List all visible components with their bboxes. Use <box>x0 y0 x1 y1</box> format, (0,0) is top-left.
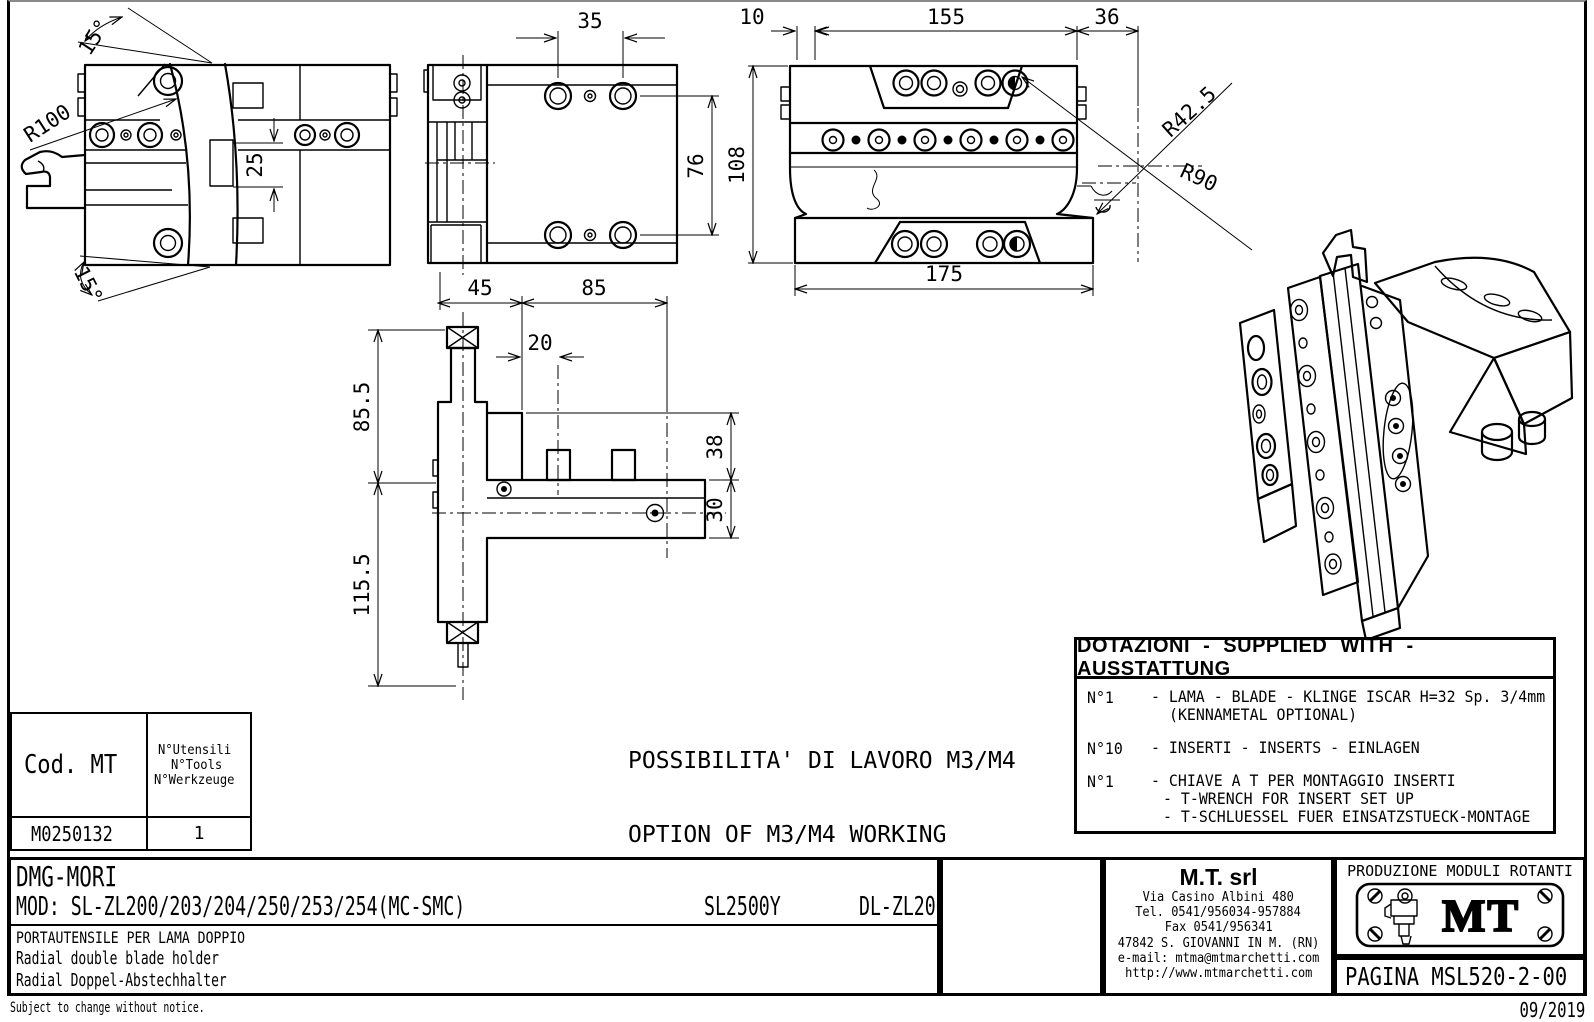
supplied-item: N°1 - LAMA - BLADE - KLINGE ISCAR H=32 S… <box>1087 688 1553 724</box>
description-it-text: PORTAUTENSILE PER LAMA DOPPIO <box>16 927 245 948</box>
working-note-line-en: OPTION OF M3/M4 WORKING <box>628 823 1016 848</box>
company-city-text: 47842 S. GIOVANNI IN M. (RN) <box>1118 936 1320 951</box>
company-address-text: Via Casino Albini 480 <box>1143 890 1294 905</box>
customer-name: DMG-MORI <box>16 862 937 892</box>
dim-label-35: 35 <box>577 9 602 33</box>
dim-label-25: 25 <box>243 152 267 177</box>
model-row: MOD: SL-ZL200/203/204/250/253/254(MC-SMC… <box>16 892 937 922</box>
logo-rotary-module-icon <box>1385 889 1417 944</box>
dim-label-20: 20 <box>527 331 552 355</box>
supplied-item-qty: N°1 <box>1087 688 1151 724</box>
tools-label-en: N°Tools <box>171 758 222 773</box>
supplied-with-box: DOTAZIONI - SUPPLIED WITH - AUSSTATTUNG … <box>1074 637 1556 834</box>
tools-count-cell: 1 <box>148 818 250 849</box>
description-en-text: Radial double blade holder <box>16 948 219 970</box>
dim-label-r42-5: R42.5 <box>1158 82 1221 142</box>
qty-text: N°1 <box>1087 772 1114 791</box>
title-block-description: PORTAUTENSILE PER LAMA DOPPIO Radial dou… <box>11 926 937 992</box>
tools-count: 1 <box>194 823 205 844</box>
dim-label-175: 175 <box>925 262 963 286</box>
company-city: 47842 S. GIOVANNI IN M. (RN) <box>1106 936 1331 951</box>
page-number: PAGINA MSL520-2-00 <box>1345 962 1594 991</box>
revision-date: 09/2019 <box>1501 998 1585 1022</box>
code-table-header-code: Cod. MT <box>12 714 148 816</box>
title-block-page-cell: PAGINA MSL520-2-00 <box>1334 957 1586 996</box>
dim-label-30: 30 <box>703 497 727 522</box>
code-table-header: Cod. MT N°Utensili N°Tools N°Werkzeuge <box>12 714 250 818</box>
code-table-header-tools: N°Utensili N°Tools N°Werkzeuge <box>148 714 250 816</box>
item-line: - T-SCHLUESSEL FUER EINSATZSTUECK-MONTAG… <box>1163 808 1530 826</box>
qty-text: N°10 <box>1087 739 1123 758</box>
company-name: M.T. srl <box>1106 864 1331 890</box>
revision-date-text: 09/2019 <box>1519 998 1585 1022</box>
dim-label-155: 155 <box>927 5 965 29</box>
description-en: Radial double blade holder <box>16 948 937 970</box>
dim-label-115-5: 115.5 <box>350 553 374 616</box>
model-list-2: SL2500Y <box>704 892 781 922</box>
title-block-company: M.T. srl Via Casino Albini 480 Tel. 0541… <box>1103 857 1334 996</box>
dim-label-angle-top: 15° <box>74 15 115 60</box>
tools-label-de: N°Werkzeuge <box>154 773 234 788</box>
drawing-sheet: { "dims": { "side": { "angle_top": "15°"… <box>0 0 1594 1018</box>
company-email-text: e-mail: mtma@mtmarchetti.com <box>1118 951 1320 966</box>
supplied-with-items: N°1 - LAMA - BLADE - KLINGE ISCAR H=32 S… <box>1077 679 1553 826</box>
page-number-text: PAGINA MSL520-2-00 <box>1345 962 1567 991</box>
code-table-row: M0250132 1 <box>12 818 250 849</box>
company-fax-text: Fax 0541/956341 <box>1164 920 1272 935</box>
title-block-customer-row: DMG-MORI MOD: SL-ZL200/203/204/250/253/2… <box>11 860 937 926</box>
qty-text: N°1 <box>1087 688 1114 707</box>
title-block-main: DMG-MORI MOD: SL-ZL200/203/204/250/253/2… <box>8 857 940 996</box>
company-tel-text: Tel. 0541/956034-957884 <box>1136 905 1302 920</box>
company-web: http://www.mtmarchetti.com <box>1106 966 1331 981</box>
supplied-item-text: - INSERTI - INSERTS - EINLAGEN <box>1151 739 1440 758</box>
item-line: - INSERTI - INSERTS - EINLAGEN <box>1151 739 1420 757</box>
company-fax: Fax 0541/956341 <box>1106 920 1331 935</box>
dim-label-r100: R100 <box>20 100 75 148</box>
description-de: Radial Doppel-Abstechhalter <box>16 970 937 992</box>
supplied-item-qty: N°10 <box>1087 739 1151 758</box>
change-notice: Subject to change without notice. <box>10 1000 288 1016</box>
view-side: 15° R100 25 15° <box>20 8 397 307</box>
title-block-logo-cell: PRODUZIONE MODULI ROTANTI MT <box>1334 857 1586 957</box>
code-value-cell: M0250132 <box>12 818 148 849</box>
tools-label-it: N°Utensili <box>158 743 231 758</box>
dim-label-angle-bottom: 15° <box>69 262 108 307</box>
supplied-item: N°10 - INSERTI - INSERTS - EINLAGEN <box>1087 739 1553 758</box>
description-de-text: Radial Doppel-Abstechhalter <box>16 970 227 992</box>
supplied-item: N°1 - CHIAVE A T PER MONTAGGIO INSERTI -… <box>1087 772 1553 826</box>
production-tagline: PRODUZIONE MODULI ROTANTI <box>1337 860 1583 882</box>
dim-label-108: 108 <box>725 146 749 184</box>
code-table: Cod. MT N°Utensili N°Tools N°Werkzeuge M… <box>10 712 252 851</box>
dim-label-r90: R90 <box>1177 159 1222 197</box>
supplied-item-text: - CHIAVE A T PER MONTAGGIO INSERTI - T-W… <box>1151 772 1558 826</box>
item-line: (KENNAMETAL OPTIONAL) <box>1169 706 1357 724</box>
item-line: - LAMA - BLADE - KLINGE ISCAR H=32 Sp. 3… <box>1151 688 1545 706</box>
dim-label-85: 85 <box>581 276 606 300</box>
dim-label-38: 38 <box>703 434 727 459</box>
dim-label-85-5: 85.5 <box>350 382 374 433</box>
view-isometric <box>1240 230 1572 640</box>
dim-label-45: 45 <box>467 276 492 300</box>
company-tel: Tel. 0541/956034-957884 <box>1106 905 1331 920</box>
model-list-1: MOD: SL-ZL200/203/204/250/253/254(MC-SMC… <box>16 892 465 922</box>
view-front: R42.5 R90 10 155 36 108 175 <box>725 5 1252 296</box>
item-line: - T-WRENCH FOR INSERT SET UP <box>1163 790 1414 808</box>
change-notice-text: Subject to change without notice. <box>10 1000 205 1016</box>
logo-text: MT <box>1442 890 1520 941</box>
view-top: 35 76 <box>424 9 719 275</box>
code-value: M0250132 <box>31 822 113 846</box>
dim-label-10: 10 <box>739 5 764 29</box>
mt-logo: MT <box>1353 882 1567 950</box>
title-block-empty-cell <box>940 857 1103 996</box>
company-web-text: http://www.mtmarchetti.com <box>1125 966 1312 981</box>
code-label: Cod. MT <box>24 750 117 780</box>
company-address: Via Casino Albini 480 <box>1106 890 1331 905</box>
working-note-line-it: POSSIBILITA' DI LAVORO M3/M4 <box>628 749 1016 774</box>
dim-label-36: 36 <box>1094 5 1119 29</box>
view-section: 45 85 20 85.5 115.5 38 30 <box>350 272 739 700</box>
dim-label-76: 76 <box>684 153 708 178</box>
supplied-with-title: DOTAZIONI - SUPPLIED WITH - AUSSTATTUNG <box>1077 640 1553 679</box>
description-it: PORTAUTENSILE PER LAMA DOPPIO <box>16 927 937 948</box>
supplied-item-text: - LAMA - BLADE - KLINGE ISCAR H=32 Sp. 3… <box>1151 688 1575 724</box>
supplied-item-qty: N°1 <box>1087 772 1151 826</box>
item-line: - CHIAVE A T PER MONTAGGIO INSERTI <box>1151 772 1456 790</box>
company-email: e-mail: mtma@mtmarchetti.com <box>1106 951 1331 966</box>
customer-text: DMG-MORI <box>16 862 117 892</box>
